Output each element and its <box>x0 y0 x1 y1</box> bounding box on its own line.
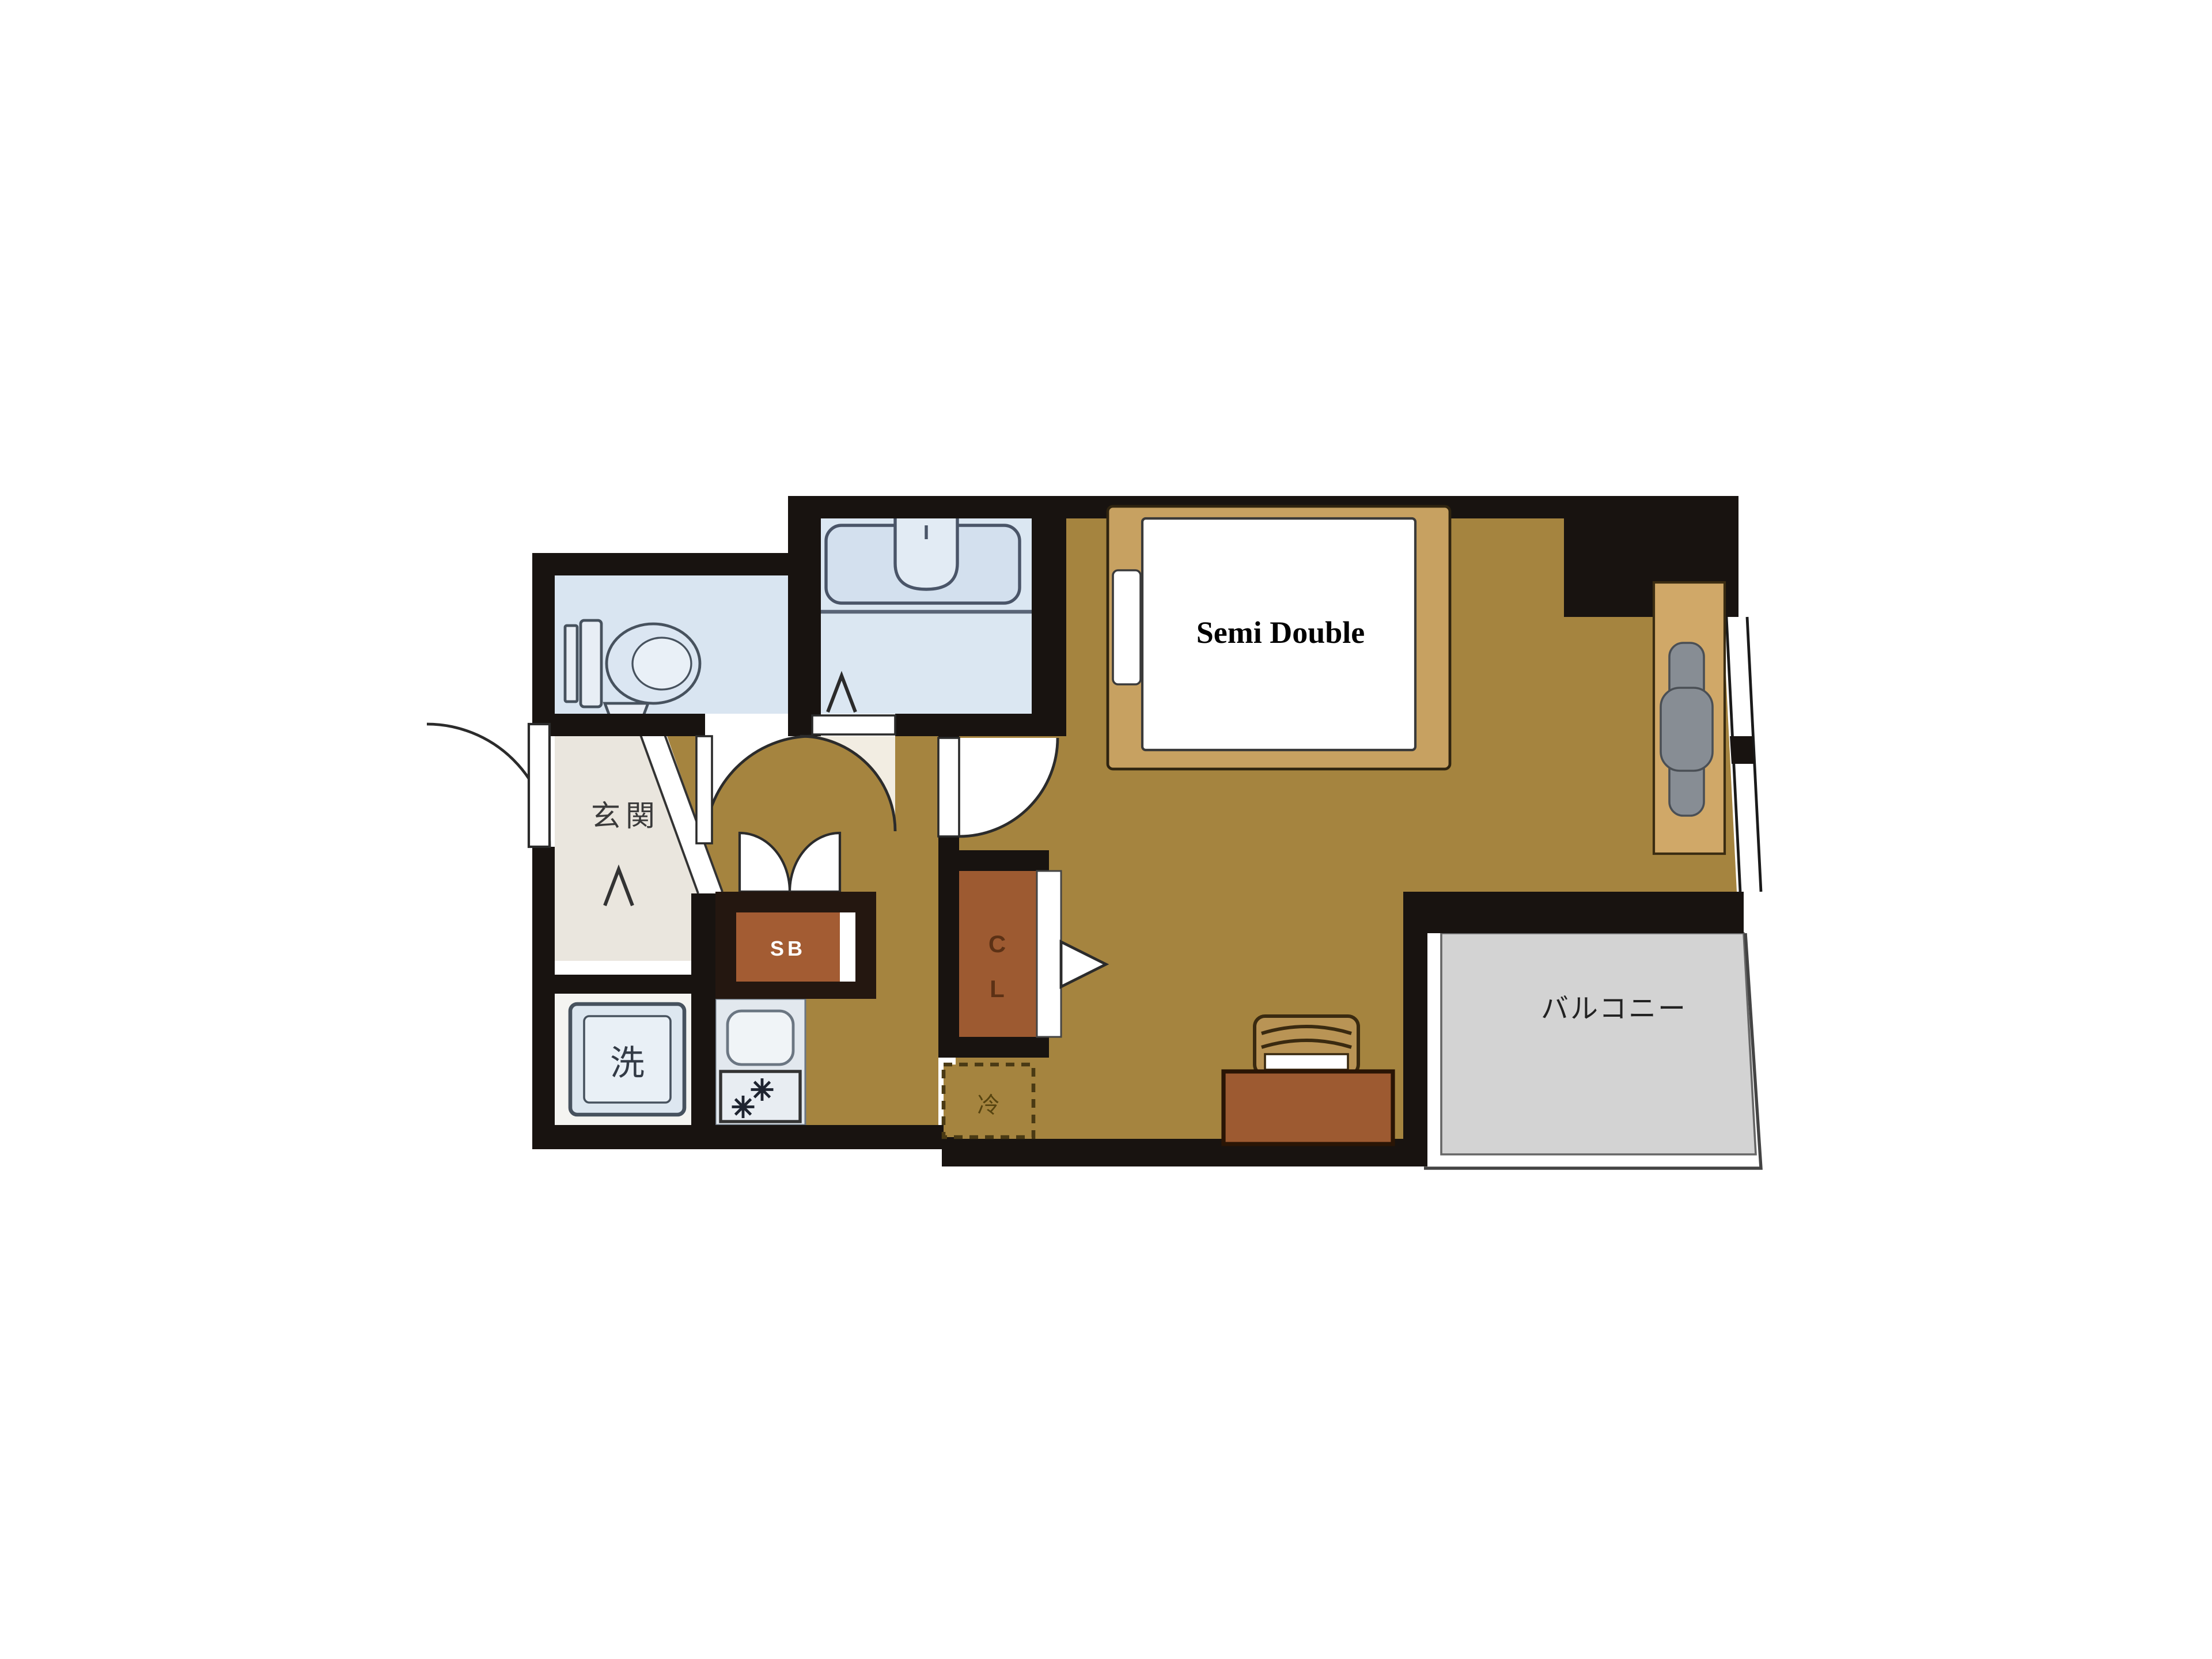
wall-segment <box>938 850 959 1058</box>
washer-label: 洗 <box>610 1044 645 1082</box>
balcony-window-strip <box>1427 933 1441 1154</box>
window-desk <box>1654 582 1725 854</box>
wall-segment <box>1422 892 1744 933</box>
shoe-box-label: SB <box>770 937 806 960</box>
wall-segment <box>532 714 705 736</box>
kitchen-sink-icon <box>728 1011 793 1065</box>
floor-plan-drawing: バルコニー 洗 <box>0 0 2212 1659</box>
window-mullion <box>1730 736 1754 764</box>
desk <box>1224 1071 1393 1144</box>
washing-machine-icon: 洗 <box>570 1004 684 1115</box>
wall-segment <box>532 1125 956 1149</box>
closet-door <box>1037 871 1061 1037</box>
wall-segment <box>532 975 715 994</box>
bed: Semi Double <box>1108 506 1450 769</box>
wall-segment <box>1032 496 1066 736</box>
wall-segment <box>691 893 715 1149</box>
wall-segment <box>788 496 821 736</box>
bathroom-door-leaf <box>812 715 895 734</box>
balcony-deck <box>1441 933 1756 1154</box>
wall-segment <box>1403 892 1427 1166</box>
balcony-label: バルコニー <box>1541 994 1687 1024</box>
toilet-door-leaf <box>696 736 712 843</box>
washer-step-strip <box>555 961 691 975</box>
wall-segment <box>532 553 809 575</box>
desk-chair-icon <box>1255 1016 1358 1075</box>
balcony: バルコニー <box>1424 933 1761 1168</box>
shoe-box-door <box>840 912 855 982</box>
bed-label: Semi Double <box>1196 615 1365 650</box>
entrance-label: 玄関 <box>591 800 660 832</box>
closet-label-c: C <box>988 930 1006 957</box>
bedroom-door-leaf <box>938 738 959 836</box>
closet-label-l: L <box>990 975 1005 1002</box>
wall-segment <box>532 553 555 736</box>
refrigerator-space: 冷 <box>944 1065 1033 1137</box>
entrance-door-leaf <box>529 724 550 847</box>
wall-segment <box>938 1037 1049 1058</box>
wall-segment <box>532 847 555 1149</box>
floor-plan-page: バルコニー 洗 <box>0 0 2212 1659</box>
entrance-door <box>427 724 550 847</box>
bathtub-icon <box>805 518 1032 612</box>
refrigerator-label: 冷 <box>977 1093 999 1118</box>
pillow <box>1113 570 1141 684</box>
wall-segment <box>895 714 1066 736</box>
stove-icon <box>721 1071 800 1122</box>
chair-back <box>1661 688 1713 771</box>
